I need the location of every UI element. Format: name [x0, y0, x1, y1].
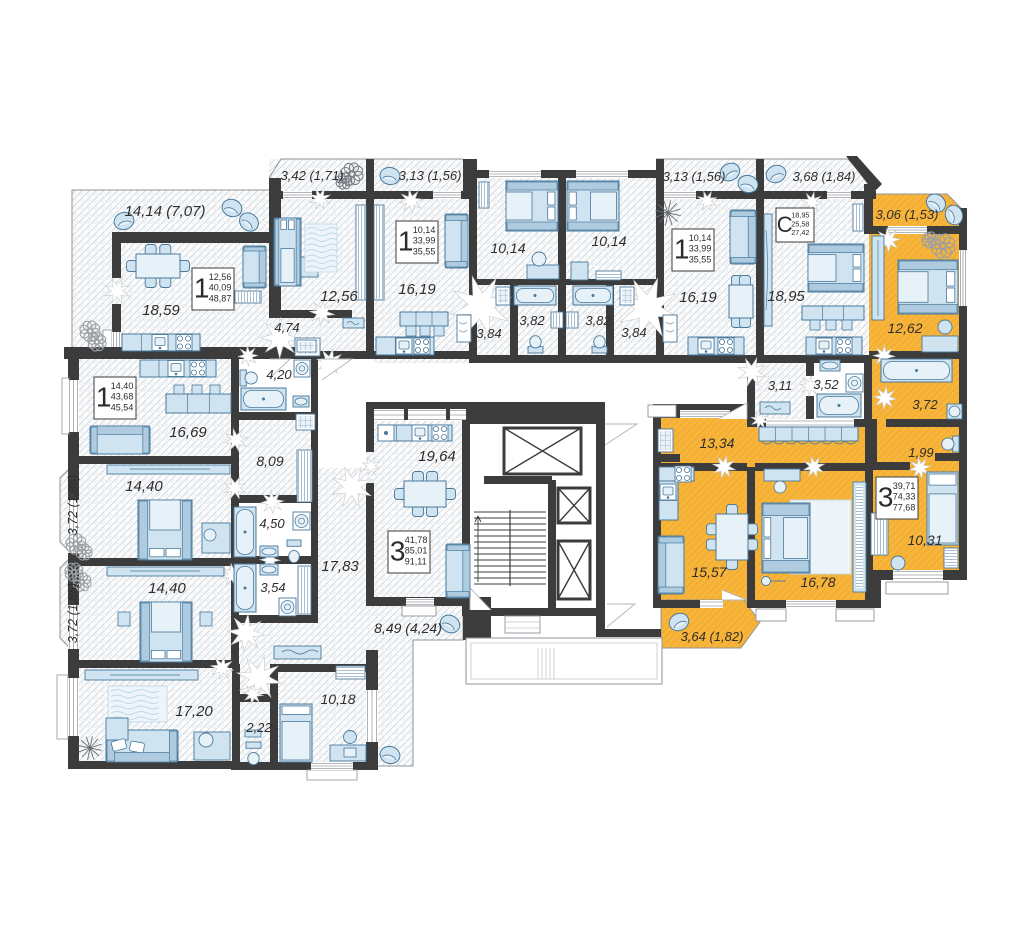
svg-text:18,59: 18,59 [142, 302, 180, 319]
svg-text:85,01: 85,01 [405, 546, 428, 556]
svg-text:17,20: 17,20 [175, 703, 213, 720]
svg-text:14,14 (7,07): 14,14 (7,07) [125, 203, 206, 220]
svg-text:3,72: 3,72 [912, 397, 938, 412]
svg-text:45,54: 45,54 [111, 403, 134, 413]
svg-text:3,68 (1,84): 3,68 (1,84) [793, 169, 856, 184]
svg-text:74,33: 74,33 [893, 492, 916, 502]
svg-text:10,14: 10,14 [591, 233, 626, 249]
svg-text:33,99: 33,99 [689, 244, 712, 254]
svg-text:10,14: 10,14 [490, 240, 525, 256]
svg-text:8,49 (4,24): 8,49 (4,24) [374, 620, 442, 636]
svg-text:14,40: 14,40 [111, 381, 134, 391]
svg-text:4,74: 4,74 [274, 320, 299, 335]
svg-text:3,82: 3,82 [585, 313, 611, 328]
svg-text:39,71: 39,71 [893, 481, 916, 491]
svg-text:16,78: 16,78 [800, 574, 835, 590]
svg-text:13,34: 13,34 [699, 435, 734, 451]
svg-text:10,31: 10,31 [907, 532, 942, 548]
svg-text:3,72 (1,86): 3,72 (1,86) [66, 475, 80, 535]
svg-text:16,19: 16,19 [398, 281, 436, 298]
svg-text:18,95: 18,95 [791, 211, 809, 220]
svg-text:35,55: 35,55 [689, 255, 712, 265]
svg-text:10,18: 10,18 [320, 691, 355, 707]
svg-text:4,50: 4,50 [259, 516, 285, 531]
svg-text:12,56: 12,56 [320, 288, 358, 305]
svg-text:10,14: 10,14 [689, 233, 712, 243]
svg-text:18,95: 18,95 [767, 288, 805, 305]
svg-text:12,62: 12,62 [887, 320, 922, 336]
svg-text:8,09: 8,09 [256, 453, 283, 469]
svg-text:3,72 (1,86): 3,72 (1,86) [66, 583, 80, 643]
svg-text:1: 1 [398, 225, 414, 256]
svg-text:16,19: 16,19 [679, 289, 717, 306]
svg-text:25,58: 25,58 [791, 219, 809, 228]
svg-text:3,84: 3,84 [621, 325, 646, 340]
svg-text:77,68: 77,68 [893, 503, 916, 513]
svg-text:3,11: 3,11 [768, 378, 792, 393]
svg-text:10,14: 10,14 [413, 225, 436, 235]
svg-text:15,57: 15,57 [691, 564, 727, 580]
svg-text:91,11: 91,11 [405, 557, 427, 567]
svg-text:12,56: 12,56 [209, 272, 232, 282]
svg-text:33,99: 33,99 [413, 236, 436, 246]
svg-text:3: 3 [878, 481, 894, 512]
svg-text:3,42 (1,71): 3,42 (1,71) [281, 168, 344, 183]
svg-text:3,52: 3,52 [813, 377, 839, 392]
svg-text:3: 3 [390, 535, 406, 566]
svg-text:40,09: 40,09 [209, 283, 232, 293]
svg-text:35,55: 35,55 [413, 247, 436, 257]
svg-text:14,40: 14,40 [148, 580, 186, 597]
svg-text:3,13 (1,56): 3,13 (1,56) [663, 169, 726, 184]
svg-text:41,78: 41,78 [405, 535, 428, 545]
svg-text:1,99: 1,99 [908, 445, 933, 460]
svg-text:3,54: 3,54 [260, 580, 285, 595]
svg-text:43,68: 43,68 [111, 392, 134, 402]
svg-text:1: 1 [674, 233, 690, 264]
svg-text:3,82: 3,82 [519, 313, 545, 328]
svg-text:1: 1 [96, 381, 112, 412]
svg-text:19,64: 19,64 [418, 448, 456, 465]
svg-text:4,20: 4,20 [266, 367, 292, 382]
svg-text:17,83: 17,83 [321, 558, 359, 575]
svg-text:2,22: 2,22 [245, 720, 272, 735]
svg-text:48,87: 48,87 [209, 294, 232, 304]
svg-text:16,69: 16,69 [169, 424, 207, 441]
svg-text:3,13 (1,56): 3,13 (1,56) [399, 168, 462, 183]
svg-text:3,64 (1,82): 3,64 (1,82) [681, 629, 744, 644]
svg-text:3,06 (1,53): 3,06 (1,53) [876, 207, 939, 222]
svg-text:3,84: 3,84 [476, 326, 501, 341]
svg-text:14,40: 14,40 [125, 478, 163, 495]
svg-text:1: 1 [194, 272, 210, 303]
svg-text:27,42: 27,42 [791, 228, 809, 237]
